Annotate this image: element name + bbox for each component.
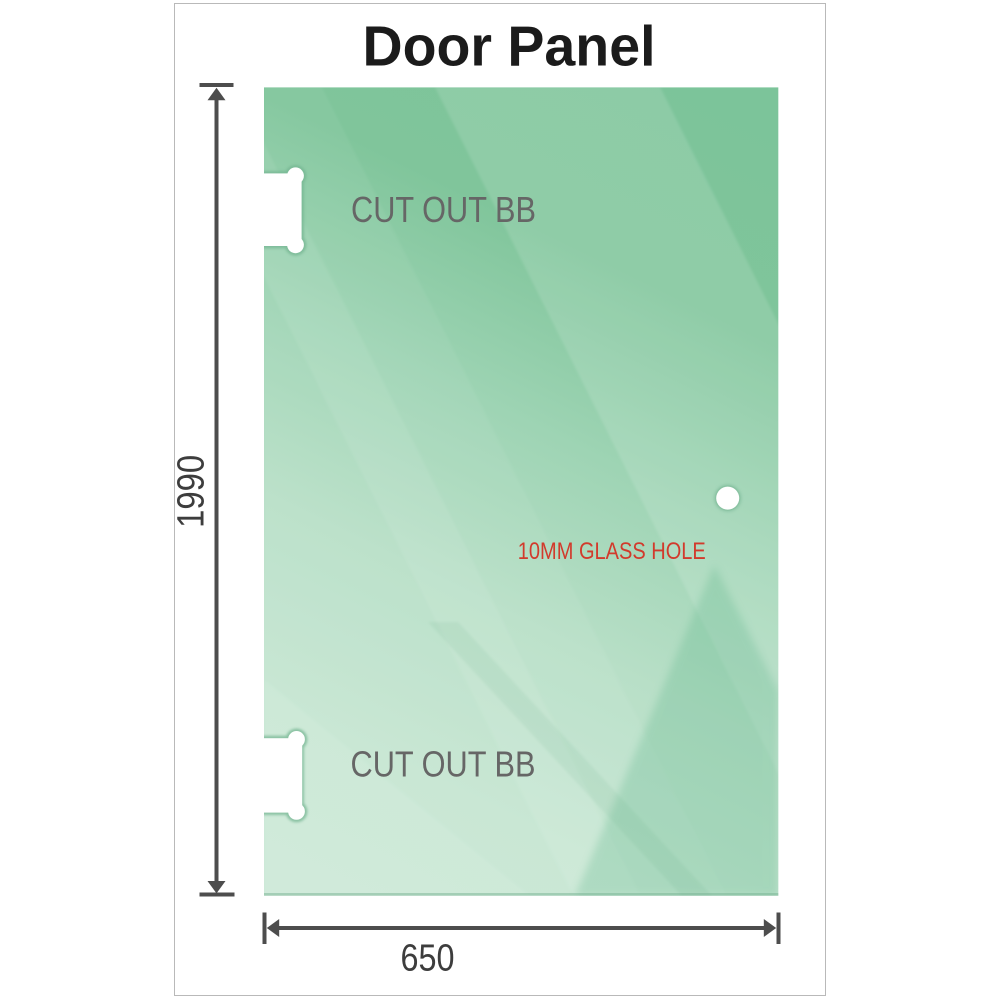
svg-text:CUT OUT BB: CUT OUT BB <box>351 189 536 230</box>
svg-text:10MM GLASS HOLE: 10MM GLASS HOLE <box>518 539 706 565</box>
svg-text:650: 650 <box>401 937 455 979</box>
svg-text:1990: 1990 <box>170 455 212 528</box>
svg-text:Door Panel: Door Panel <box>363 15 656 78</box>
svg-text:CUT OUT BB: CUT OUT BB <box>351 744 536 785</box>
